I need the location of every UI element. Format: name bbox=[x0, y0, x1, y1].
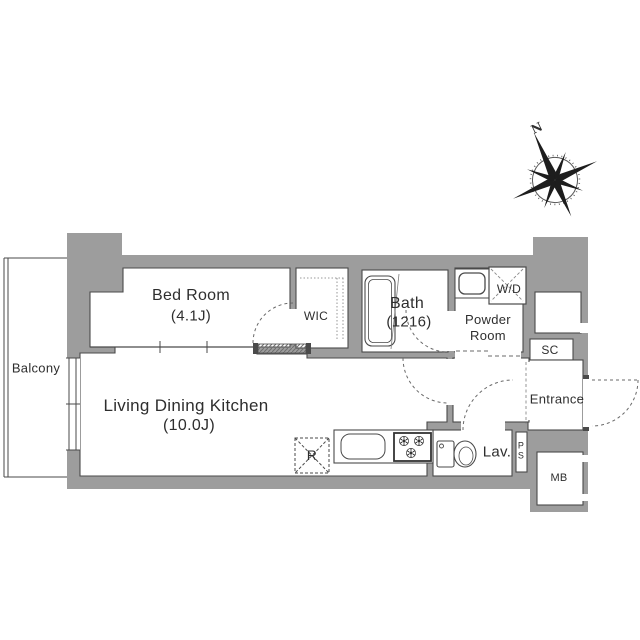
ldk-label: Living Dining Kitchen bbox=[103, 396, 268, 416]
balcony-label: Balcony bbox=[12, 361, 60, 376]
room-void bbox=[535, 292, 581, 333]
compass-icon bbox=[492, 114, 614, 238]
stove-icon bbox=[394, 433, 431, 461]
washer-dryer-label: W/D bbox=[497, 282, 521, 296]
kitchen-sink-icon bbox=[341, 434, 385, 459]
kitchen-counter bbox=[334, 430, 433, 463]
door-hinge bbox=[583, 375, 589, 379]
lavatory-label: Lav. bbox=[483, 444, 511, 461]
shoe-closet-label: SC bbox=[541, 343, 558, 357]
bath-size: (1216) bbox=[386, 314, 431, 331]
bedroom-label: Bed Room bbox=[152, 287, 230, 305]
door-post bbox=[253, 343, 258, 354]
sliding-door-sill bbox=[258, 344, 306, 353]
wic-label: WIC bbox=[304, 309, 328, 323]
bedroom-size: (4.1J) bbox=[171, 308, 211, 325]
door-hinge bbox=[583, 427, 589, 431]
entrance-door-arc bbox=[592, 380, 638, 426]
door-post bbox=[306, 343, 311, 354]
room-wic bbox=[296, 268, 348, 348]
toilet-icon bbox=[437, 441, 476, 467]
bath-label: Bath bbox=[390, 295, 424, 313]
entrance-label: Entrance bbox=[530, 392, 584, 407]
powder-room-label: Powder Room bbox=[465, 312, 511, 344]
meter-box-label: MB bbox=[550, 472, 567, 484]
washbasin-icon bbox=[455, 269, 489, 298]
room-hallway bbox=[453, 358, 529, 422]
ldk-size: (10.0J) bbox=[163, 417, 215, 435]
refrigerator-label: R bbox=[307, 447, 317, 463]
pipe-space-label: P S bbox=[518, 441, 524, 462]
floor-plan: Balcony Bed Room (4.1J) WIC Bath (1216) … bbox=[0, 0, 640, 640]
